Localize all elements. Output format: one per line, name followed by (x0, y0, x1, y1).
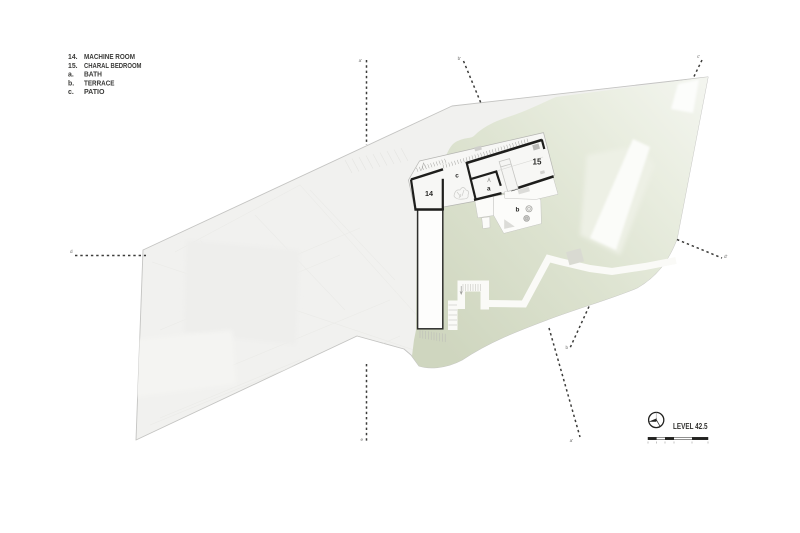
svg-text:d': d' (724, 254, 728, 259)
svg-text:15.: 15. (68, 63, 78, 70)
svg-text:BATH: BATH (84, 72, 102, 79)
svg-text:14: 14 (425, 189, 433, 198)
svg-text:c: c (455, 173, 459, 180)
svg-text:e: e (360, 437, 363, 442)
svg-text:MACHINE ROOM: MACHINE ROOM (84, 54, 135, 61)
svg-text:PATIO: PATIO (84, 89, 105, 96)
svg-text:b: b (565, 345, 568, 350)
svg-text:15: 15 (533, 158, 542, 167)
svg-text:CHARAL BEDROOM: CHARAL BEDROOM (84, 63, 142, 70)
svg-text:TERRACE: TERRACE (84, 80, 115, 87)
svg-text:c.: c. (68, 89, 74, 96)
svg-text:14.: 14. (68, 54, 78, 61)
svg-text:a': a' (570, 438, 574, 443)
svg-text:LEVEL 42.5: LEVEL 42.5 (673, 422, 708, 431)
svg-text:b.: b. (68, 80, 74, 87)
svg-text:c': c' (697, 54, 700, 59)
svg-text:a: a (487, 186, 491, 193)
svg-text:b': b' (458, 56, 462, 61)
svg-text:b: b (516, 207, 520, 214)
svg-text:a.: a. (68, 72, 74, 79)
svg-text:a': a' (359, 58, 363, 63)
svg-text:d: d (70, 249, 73, 254)
